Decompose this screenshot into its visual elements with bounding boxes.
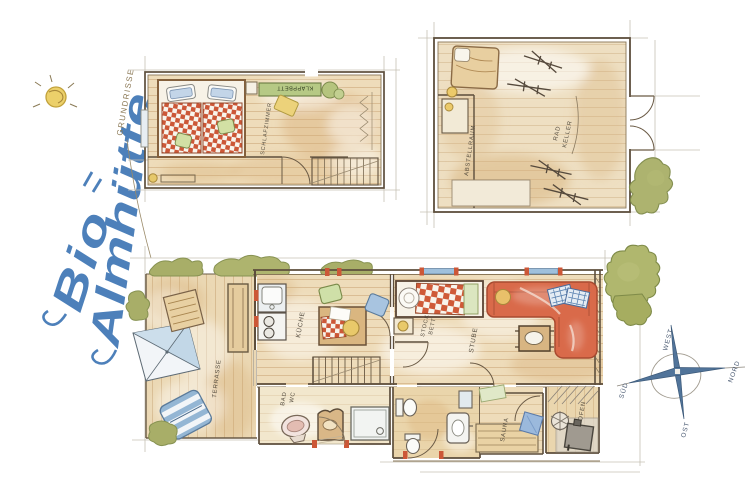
svg-text:KLAPPBETT: KLAPPBETT: [277, 85, 313, 91]
